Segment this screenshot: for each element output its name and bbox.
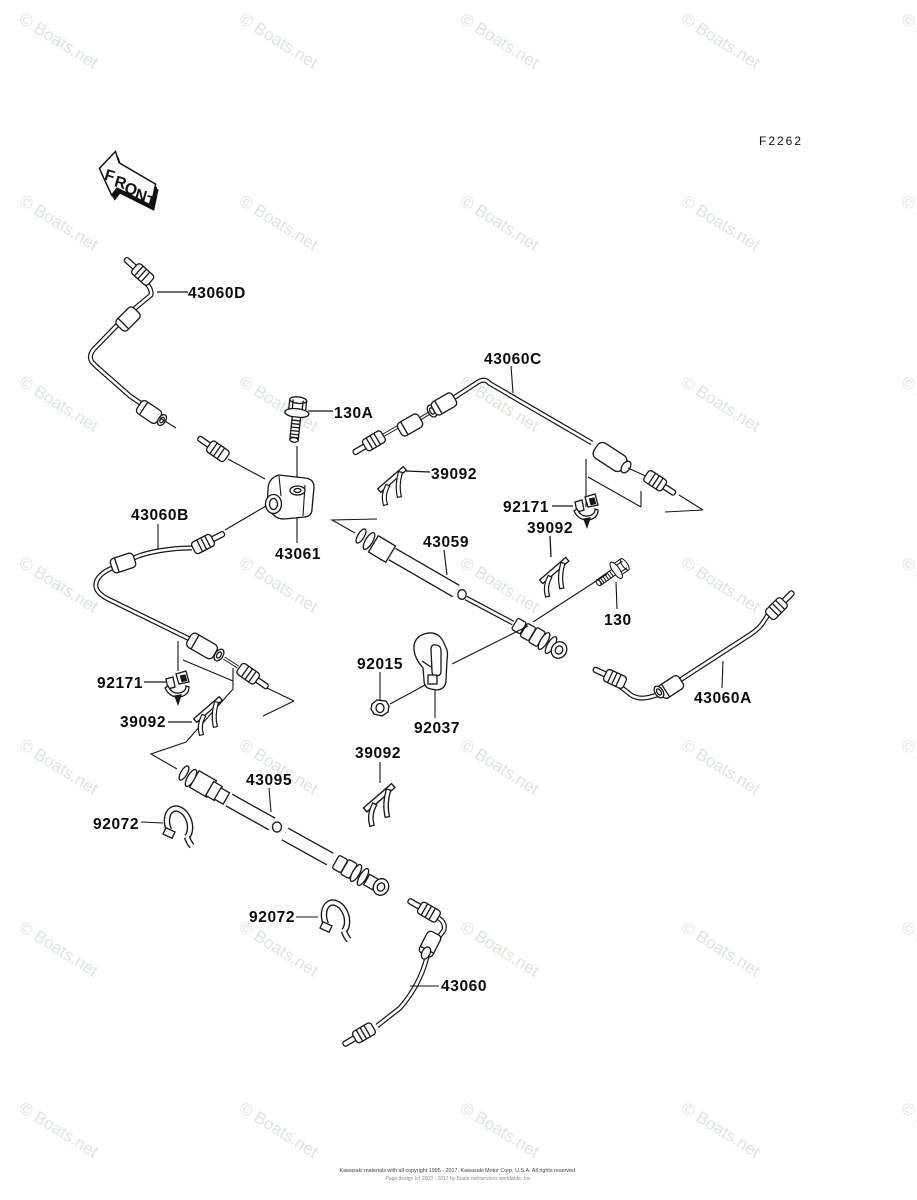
svg-text:39092: 39092 <box>355 745 401 762</box>
svg-text:130: 130 <box>604 612 632 629</box>
svg-text:130A: 130A <box>334 405 373 422</box>
svg-text:92171: 92171 <box>503 499 549 516</box>
svg-text:43060A: 43060A <box>694 690 752 707</box>
svg-text:92037: 92037 <box>414 720 460 737</box>
svg-text:F2262: F2262 <box>759 134 803 148</box>
svg-text:92171: 92171 <box>97 675 143 692</box>
svg-text:43061: 43061 <box>275 546 321 563</box>
svg-text:39092: 39092 <box>431 466 477 483</box>
svg-text:39092: 39092 <box>120 714 166 731</box>
svg-text:Kawasaki materials with all co: Kawasaki materials with all copyright 19… <box>340 1168 577 1174</box>
svg-text:39092: 39092 <box>527 520 573 537</box>
svg-text:43059: 43059 <box>423 534 469 551</box>
svg-text:43060D: 43060D <box>188 285 246 302</box>
svg-text:43060B: 43060B <box>131 507 189 524</box>
svg-text:43060: 43060 <box>441 978 487 995</box>
svg-text:92015: 92015 <box>357 656 403 673</box>
svg-text:43060C: 43060C <box>484 351 542 368</box>
svg-text:92072: 92072 <box>93 816 139 833</box>
svg-text:Page design (c) 2003 - 2017 by: Page design (c) 2003 - 2017 by Boats.net… <box>385 1176 531 1182</box>
svg-text:92072: 92072 <box>249 909 295 926</box>
svg-text:43095: 43095 <box>246 772 292 789</box>
